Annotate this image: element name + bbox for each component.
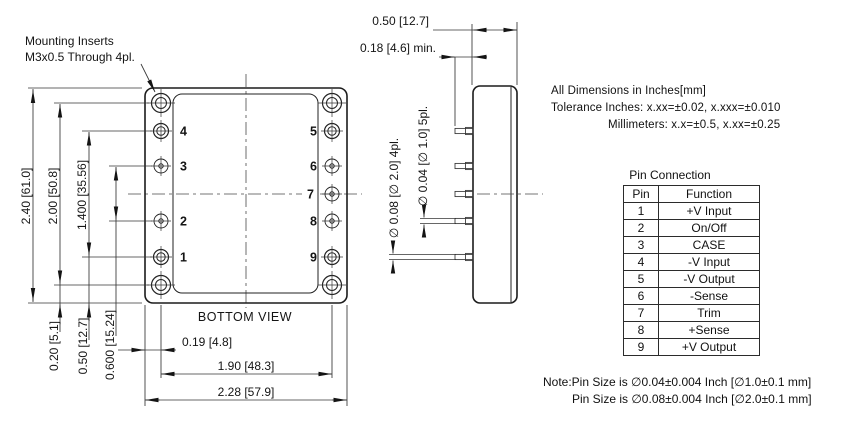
- pin-function-table: Pin Function 1+V Input 2On/Off 3CASE 4-V…: [623, 185, 760, 356]
- pin-6-label: 6: [310, 160, 317, 174]
- function-cell: -V Input: [659, 254, 760, 271]
- pin-5-label: 5: [310, 125, 317, 139]
- dim-width-overall: 2.28 [57.9]: [218, 385, 275, 399]
- pin-2-label: 2: [180, 215, 187, 229]
- pin-3-marker: [151, 156, 171, 176]
- pin-table-title: Pin Connection: [613, 168, 727, 182]
- pin-9-marker: [321, 246, 343, 268]
- pin-size-notes: Note:Pin Size is ∅0.04±0.004 Inch [∅1.0±…: [543, 374, 812, 407]
- dim-pin-row-span: 1.400 [35.56]: [75, 160, 89, 230]
- function-column-header: Function: [659, 186, 760, 203]
- table-row: 8+Sense: [624, 322, 760, 339]
- mounting-note: Mounting Inserts M3x0.5 Through 4pl.: [25, 34, 155, 92]
- table-row: 9+V Output: [624, 339, 760, 356]
- side-view-dimensions: 0.50 [12.7] 0.18 [4.6] min. ∅ 0.04 [∅ 1.…: [360, 14, 517, 272]
- dim-pin2-pin3-gap: 0.600 [15.24]: [103, 310, 117, 380]
- table-row: 4-V Input: [624, 254, 760, 271]
- pin-7-label: 7: [307, 188, 314, 202]
- function-cell: -Sense: [659, 288, 760, 305]
- pin-cell: 6: [624, 288, 659, 305]
- dim-pin-column-span: 1.90 [48.3]: [218, 359, 275, 373]
- tolerance-label: Tolerance: [551, 102, 602, 114]
- pin-2-marker: [151, 211, 171, 231]
- pin-7-marker: [322, 184, 342, 204]
- dim-edge-to-pin-column: 0.19 [4.8]: [182, 335, 232, 349]
- module-inner-outline: [173, 94, 318, 293]
- function-cell: +V Output: [659, 339, 760, 356]
- function-cell: +Sense: [659, 322, 760, 339]
- pin-1-marker: [150, 246, 172, 268]
- pin-8-marker: [322, 211, 342, 231]
- pin-size-note-small: Note:Pin Size is ∅0.04±0.004 Inch [∅1.0±…: [543, 374, 812, 391]
- bottom-view: 4 3 2 1 5 6 7 8 9 BOTTOM VIEW: [128, 74, 362, 324]
- dim-pin-length-min: 0.18 [4.6] min.: [360, 41, 436, 55]
- pin-3-label: 3: [180, 160, 187, 174]
- mounting-hole-bottom-left: [147, 271, 175, 299]
- function-cell: Trim: [659, 305, 760, 322]
- function-cell: +V Input: [659, 203, 760, 220]
- table-row: 6-Sense: [624, 288, 760, 305]
- pin-5-marker: [321, 120, 343, 142]
- pin-cell: 9: [624, 339, 659, 356]
- table-row: 2On/Off: [624, 220, 760, 237]
- pin-cell: 3: [624, 237, 659, 254]
- tolerance-block: All Dimensions in Inches[mm] ToleranceIn…: [551, 83, 781, 134]
- mounting-hole-bottom-right: [318, 271, 346, 299]
- side-view-pins: [455, 127, 473, 260]
- pin-cell: 4: [624, 254, 659, 271]
- dim-height-overall: 2.40 [61.0]: [19, 168, 33, 225]
- pin-cell: 7: [624, 305, 659, 322]
- function-cell: CASE: [659, 237, 760, 254]
- dim-mount-hole-span: 2.00 [50.8]: [46, 168, 60, 225]
- mounting-hole-top-right: [318, 89, 346, 117]
- pin-cell: 1: [624, 203, 659, 220]
- table-row: 3CASE: [624, 237, 760, 254]
- pin-cell: 8: [624, 322, 659, 339]
- case-outline: [473, 86, 517, 303]
- side-view: 0.50 [12.7] 0.18 [4.6] min. ∅ 0.04 [∅ 1.…: [360, 14, 543, 303]
- pin-size-note-large: Pin Size is ∅0.08±0.004 Inch [∅2.0±0.1 m…: [572, 391, 812, 408]
- pin-8-label: 8: [310, 215, 317, 229]
- function-cell: -V Output: [659, 271, 760, 288]
- mounting-hole-top-left: [147, 89, 175, 117]
- table-row: 5-V Output: [624, 271, 760, 288]
- bottom-view-caption: BOTTOM VIEW: [198, 310, 292, 324]
- dim-edge-to-mount-hole: 0.20 [5.1]: [47, 321, 61, 371]
- pin-4-marker: [150, 120, 172, 142]
- pin-4-label: 4: [180, 125, 187, 139]
- dim-edge-to-pin1: 0.50 [12.7]: [76, 318, 90, 375]
- pin-9-label: 9: [310, 251, 317, 265]
- table-row: 1+V Input: [624, 203, 760, 220]
- pin-6-marker: [322, 156, 342, 176]
- pin-connection-table: Pin Function 1+V Input 2On/Off 3CASE 4-V…: [623, 185, 760, 356]
- dim-case-depth: 0.50 [12.7]: [372, 14, 429, 28]
- technical-drawing-page: 4 3 2 1 5 6 7 8 9 BOTTOM VIEW Mounting I…: [0, 0, 849, 431]
- function-cell: On/Off: [659, 220, 760, 237]
- millimeters-tolerance: Millimeters: x.x=±0.5, x.xx=±0.25: [608, 117, 781, 134]
- pin-cell: 2: [624, 220, 659, 237]
- pin-column-header: Pin: [624, 186, 659, 203]
- mounting-note-leader-line: [141, 64, 155, 92]
- pin-1-label: 1: [180, 251, 187, 265]
- pin-cell: 5: [624, 271, 659, 288]
- table-header-row: Pin Function: [624, 186, 760, 203]
- inches-tolerance: Inches: x.xx=±0.02, x.xxx=±0.010: [605, 102, 780, 114]
- dimensions-units-note: All Dimensions in Inches[mm]: [551, 83, 781, 100]
- mounting-note-line1: Mounting Inserts: [25, 34, 114, 48]
- dim-pin-diameter-large: ∅ 0.08 [∅ 2.0] 4pl.: [387, 138, 401, 238]
- mounting-note-line2: M3x0.5 Through 4pl.: [25, 50, 135, 64]
- tolerance-line: ToleranceInches: x.xx=±0.02, x.xxx=±0.01…: [551, 100, 781, 117]
- table-row: 7Trim: [624, 305, 760, 322]
- dim-pin-diameter-small: ∅ 0.04 [∅ 1.0] 5pl.: [416, 106, 430, 206]
